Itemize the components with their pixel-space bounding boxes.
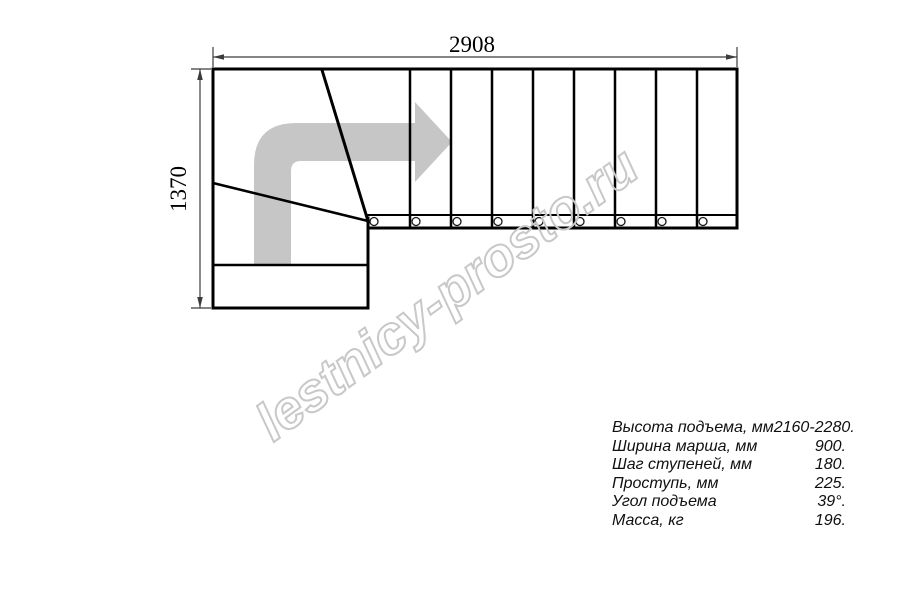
technical-drawing-canvas: 2908 1370 lestnicy-prosto.ru Высота подъ… xyxy=(0,0,900,600)
spec-label: Высота подъема, мм xyxy=(612,419,774,438)
dimension-width: 2908 xyxy=(213,32,737,67)
tread-lines xyxy=(410,69,697,228)
dimension-height-label: 1370 xyxy=(166,166,191,212)
turn-right-arrow-icon xyxy=(254,102,452,266)
spec-value: 39°. xyxy=(817,493,846,512)
spec-value: 2160-2280. xyxy=(774,419,855,438)
spec-row-climb-angle: Угол подъема 39°. xyxy=(612,493,846,512)
spec-row-step-pitch: Шаг ступеней, мм 180. xyxy=(612,456,846,475)
spec-row-flight-width: Ширина марша, мм 900. xyxy=(612,438,846,457)
spec-label: Шаг ступеней, мм xyxy=(612,456,752,475)
spec-row-rise-height: Высота подъема, мм 2160-2280. xyxy=(612,419,846,438)
dimension-height: 1370 xyxy=(166,69,211,308)
staircase-outline xyxy=(213,69,737,308)
spec-label: Масса, кг xyxy=(612,512,684,531)
spec-table: Высота подъема, мм 2160-2280. Ширина мар… xyxy=(612,419,846,531)
spec-value: 900. xyxy=(815,438,846,457)
spec-row-tread-depth: Проступь, мм 225. xyxy=(612,475,846,494)
spec-label: Угол подъема xyxy=(612,493,717,512)
spec-row-mass: Масса, кг 196. xyxy=(612,512,846,531)
spec-label: Проступь, мм xyxy=(612,475,718,494)
spec-value: 196. xyxy=(815,512,846,531)
spec-value: 180. xyxy=(815,456,846,475)
dimension-width-label: 2908 xyxy=(449,32,495,57)
spec-value: 225. xyxy=(815,475,846,494)
spec-label: Ширина марша, мм xyxy=(612,438,757,457)
